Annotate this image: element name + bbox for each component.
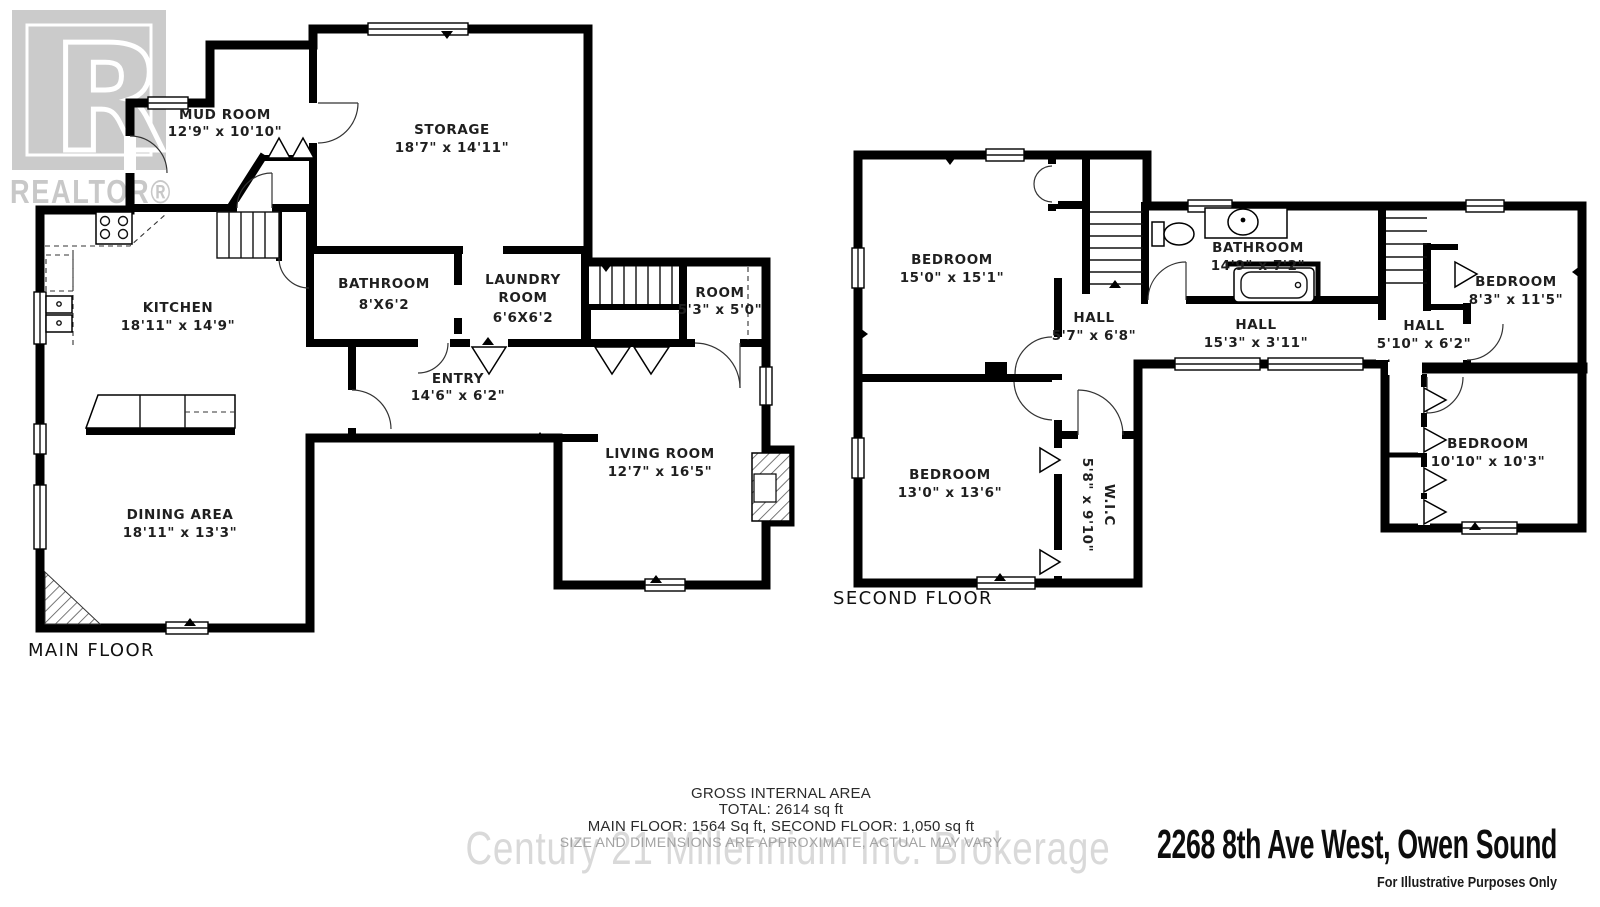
footer-area-summary: GROSS INTERNAL AREA TOTAL: 2614 sq ft MA…	[560, 785, 1003, 850]
floorplan-page: R REALTOR® Century 21 Millennium Inc. Br…	[0, 0, 1600, 907]
room-dims-wic: 5'8" x 9'10"	[1079, 458, 1095, 553]
room-dims-laundry: 6'6X6'2	[493, 310, 553, 326]
room-dims-hall-1: 5'7" x 6'8"	[1052, 328, 1137, 344]
fireplace	[752, 453, 790, 521]
room-label-laundry-2: ROOM	[498, 290, 547, 306]
staircase-second-right	[1386, 218, 1427, 283]
room-dims-room: 5'3" x 5'0"	[678, 302, 763, 318]
room-dims-hall-3: 5'10" x 6'2"	[1377, 336, 1472, 352]
second-floor-title: SECOND FLOOR	[833, 588, 993, 609]
room-dims-kitchen: 18'11" x 14'9"	[121, 318, 236, 334]
disclaimer: SIZE AND DIMENSIONS ARE APPROXIMATE, ACT…	[560, 834, 1003, 850]
room-label-kitchen: KITCHEN	[143, 300, 214, 316]
room-dims-bedroom-1: 15'0" x 15'1"	[900, 270, 1005, 286]
room-dims-storage: 18'7" x 14'11"	[395, 140, 510, 156]
room-dims-entry: 14'6" x 6'2"	[411, 388, 506, 404]
wic-label-group: W.I.C 5'8" x 9'10"	[1079, 458, 1117, 553]
room-label-dining-area: DINING AREA	[127, 507, 234, 523]
room-label-bedroom-2: BEDROOM	[1475, 274, 1557, 290]
gross-internal-area-title: GROSS INTERNAL AREA	[691, 785, 871, 802]
room-label-room: ROOM	[695, 285, 744, 301]
room-label-bedroom-3: BEDROOM	[1447, 436, 1529, 452]
illustrative-note: For Illustrative Purposes Only	[1377, 874, 1558, 891]
total-area: TOTAL: 2614 sq ft	[719, 801, 844, 818]
wall-markers	[184, 31, 1580, 626]
room-label-bedroom-1: BEDROOM	[911, 252, 993, 268]
room-dims-bathroom-main: 8'X6'2	[359, 297, 409, 313]
room-dims-living-room: 12'7" x 16'5"	[608, 464, 713, 480]
dining-corner-stairs-hatch	[45, 572, 100, 624]
chimney-block	[985, 362, 1007, 378]
kitchen-island	[86, 395, 235, 435]
second-floor-plan	[852, 149, 1582, 589]
room-label-bedroom-4: BEDROOM	[909, 467, 991, 483]
footer-address-block: 2268 8th Ave West, Owen Sound For Illust…	[1157, 821, 1558, 891]
room-label-hall-1: HALL	[1073, 310, 1114, 326]
room-dims-mud-room: 12'9" x 10'10"	[168, 124, 283, 140]
realtor-logo-watermark: R REALTOR®	[10, 10, 172, 210]
room-dims-bedroom-3: 10'10" x 10'3"	[1431, 454, 1546, 470]
room-dims-bathroom-second: 14'9" x 7'2"	[1211, 258, 1306, 274]
room-dims-bedroom-4: 13'0" x 13'6"	[898, 485, 1003, 501]
staircase-main	[600, 266, 672, 304]
floor-areas: MAIN FLOOR: 1564 Sq ft, SECOND FLOOR: 1,…	[588, 818, 975, 835]
room-label-storage: STORAGE	[414, 122, 490, 138]
room-label-entry: ENTRY	[432, 371, 484, 387]
room-label-living-room: LIVING ROOM	[605, 446, 715, 462]
room-label-hall-3: HALL	[1403, 318, 1444, 334]
room-dims-dining-area: 18'11" x 13'3"	[123, 525, 238, 541]
room-dims-hall-2: 15'3" x 3'11"	[1204, 335, 1309, 351]
room-label-mud-room: MUD ROOM	[179, 107, 271, 123]
room-label-bathroom-main: BATHROOM	[338, 276, 430, 292]
room-dims-bedroom-2: 8'3" x 11'5"	[1469, 292, 1564, 308]
floorplan-canvas: R REALTOR® Century 21 Millennium Inc. Br…	[0, 0, 1600, 907]
room-label-wic: W.I.C	[1101, 484, 1117, 526]
room-label-bathroom-second: BATHROOM	[1212, 240, 1304, 256]
second-floor-labels: BEDROOM 15'0" x 15'1" HALL 5'7" x 6'8" B…	[833, 240, 1563, 609]
property-address: 2268 8th Ave West, Owen Sound	[1157, 821, 1557, 867]
staircase-basement	[217, 212, 279, 258]
staircase-second	[1090, 212, 1143, 284]
room-label-hall-2: HALL	[1235, 317, 1276, 333]
room-label-laundry-1: LAUNDRY	[485, 272, 561, 288]
main-floor-title: MAIN FLOOR	[28, 640, 155, 661]
